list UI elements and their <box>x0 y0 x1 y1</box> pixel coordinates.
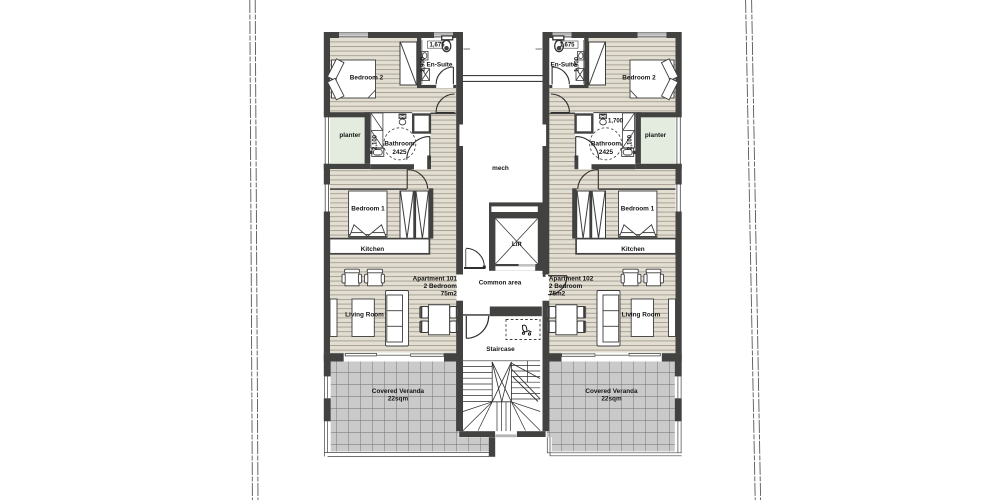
svg-text:2 Bedroom: 2 Bedroom <box>424 283 458 290</box>
svg-text:En-Suite: En-Suite <box>427 62 453 69</box>
svg-text:En-Suite: En-Suite <box>551 62 577 69</box>
svg-text:1,700: 1,700 <box>608 119 624 125</box>
svg-text:2425: 2425 <box>392 149 407 156</box>
svg-text:planter: planter <box>645 132 667 139</box>
svg-text:1,675: 1,675 <box>559 43 575 49</box>
svg-text:2,100: 2,100 <box>628 134 634 150</box>
svg-text:Living Room: Living Room <box>345 312 384 319</box>
svg-text:1,900: 1,900 <box>575 56 581 72</box>
svg-text:1,900: 1,900 <box>421 56 427 72</box>
svg-text:mech: mech <box>492 165 509 172</box>
svg-text:2 Bedroom: 2 Bedroom <box>549 283 583 290</box>
svg-text:Kitchen: Kitchen <box>361 246 385 253</box>
svg-text:2,100: 2,100 <box>373 134 379 150</box>
svg-text:planter: planter <box>339 132 361 139</box>
svg-text:22sqm: 22sqm <box>388 396 409 403</box>
svg-text:Covered Veranda: Covered Veranda <box>372 388 425 395</box>
svg-text:Bathroom: Bathroom <box>591 141 621 148</box>
svg-text:Staircase: Staircase <box>486 346 515 353</box>
svg-text:Living Room: Living Room <box>622 312 661 319</box>
svg-text:Kitchen: Kitchen <box>621 246 645 253</box>
svg-text:Bedroom 1: Bedroom 1 <box>351 206 385 213</box>
svg-text:75m2: 75m2 <box>441 291 458 298</box>
svg-text:2425: 2425 <box>599 149 614 156</box>
svg-text:Bedroom 1: Bedroom 1 <box>621 206 655 213</box>
svg-text:Common area: Common area <box>479 280 522 287</box>
svg-text:75m2: 75m2 <box>549 291 566 298</box>
svg-text:Apartment 101: Apartment 101 <box>413 276 458 283</box>
svg-text:1,675: 1,675 <box>429 43 445 49</box>
svg-text:22sqm: 22sqm <box>601 396 622 403</box>
svg-text:Bedroom 2: Bedroom 2 <box>622 75 656 82</box>
svg-text:Bedroom 2: Bedroom 2 <box>350 75 384 82</box>
svg-text:Apartment 102: Apartment 102 <box>549 276 594 283</box>
svg-text:Covered Veranda: Covered Veranda <box>585 388 638 395</box>
svg-text:Bathroom: Bathroom <box>384 141 414 148</box>
svg-text:Lift: Lift <box>512 241 523 248</box>
